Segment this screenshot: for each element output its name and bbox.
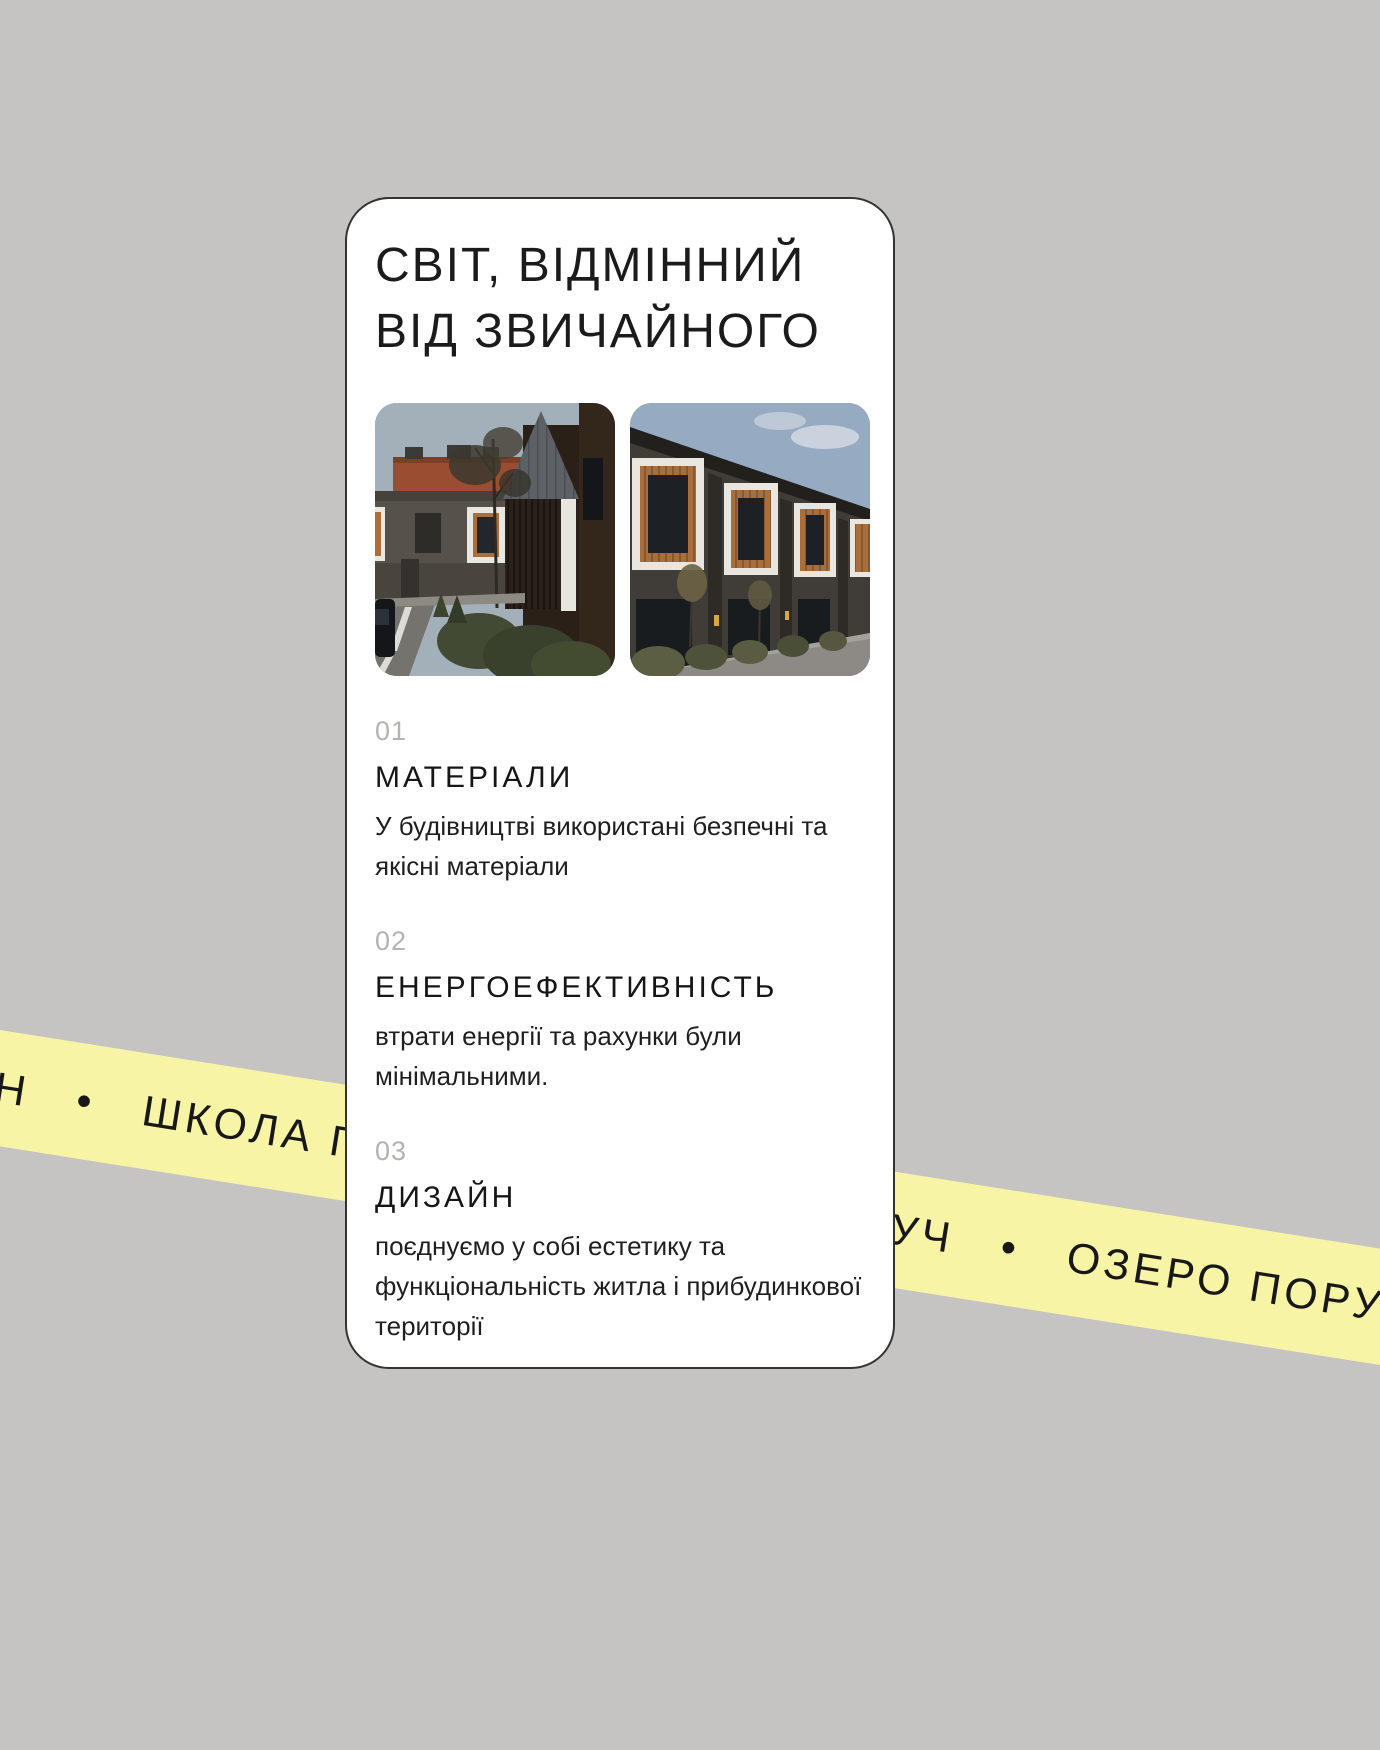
section-text: У будівництві використані безпечні та як… xyxy=(375,806,865,886)
page-title: СВІТ, ВІДМІННИЙ ВІД ЗВИЧАЙНОГО xyxy=(375,233,865,365)
townhouse-street-photo xyxy=(375,403,615,676)
ribbon-text-right: УЧ • ОЗЕРО ПОРУЧ xyxy=(887,1205,1380,1337)
townhouse-row-illustration xyxy=(630,403,870,676)
section-number: 01 xyxy=(375,716,865,746)
section-heading: ДИЗАЙН xyxy=(375,1180,865,1216)
townhouse-street-illustration xyxy=(375,403,615,676)
section-text: поєднуємо у собі естетику та функціональ… xyxy=(375,1226,865,1346)
section-energy-efficiency: 02 ЕНЕРГОЕФЕКТИВНІСТЬ втрати енергії та … xyxy=(375,926,865,1096)
page-background: Н • ШКОЛА ПОРУЧ УЧ • ОЗЕРО ПОРУЧ СВІТ, В… xyxy=(0,0,1380,1750)
townhouse-row-photo xyxy=(630,403,870,676)
section-design: 03 ДИЗАЙН поєднуємо у собі естетику та ф… xyxy=(375,1136,865,1346)
section-text: втрати енергії та рахунки були мінімальн… xyxy=(375,1016,865,1096)
photo-row xyxy=(375,403,865,676)
section-number: 02 xyxy=(375,926,865,956)
section-heading: МАТЕРІАЛИ xyxy=(375,760,865,796)
section-heading: ЕНЕРГОЕФЕКТИВНІСТЬ xyxy=(375,970,865,1006)
section-number: 03 xyxy=(375,1136,865,1166)
section-materials: 01 МАТЕРІАЛИ У будівництві використані б… xyxy=(375,716,865,886)
content-card: СВІТ, ВІДМІННИЙ ВІД ЗВИЧАЙНОГО xyxy=(345,197,895,1369)
